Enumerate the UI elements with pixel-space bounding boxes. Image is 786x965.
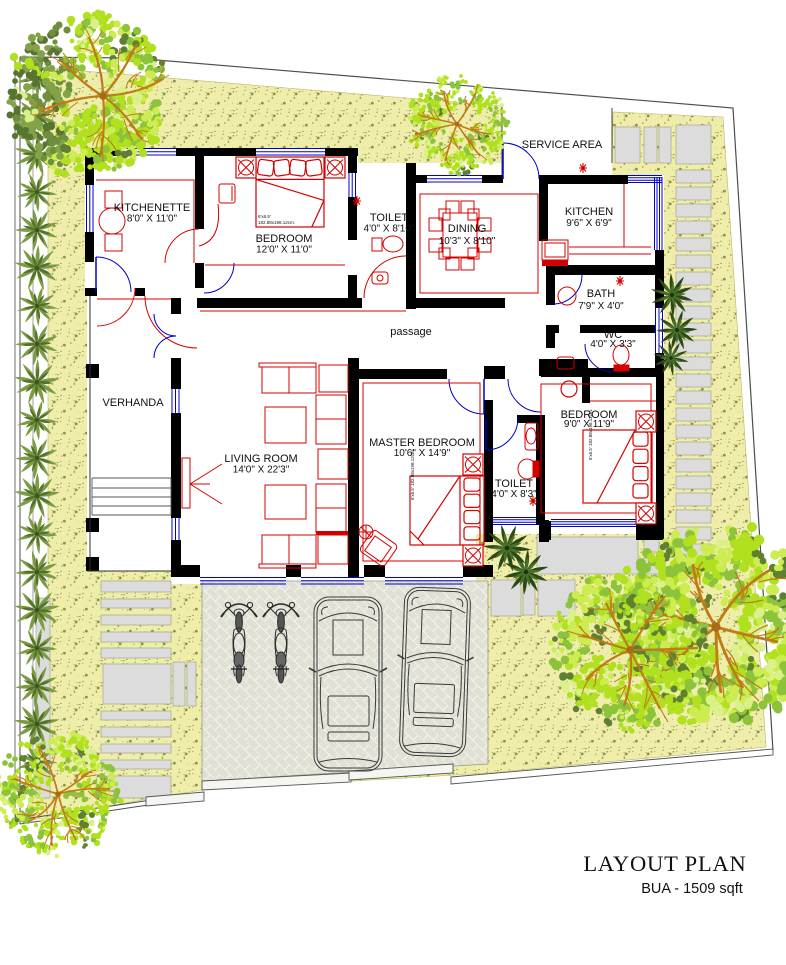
svg-text:4'0" X 3'3": 4'0" X 3'3" — [590, 339, 636, 350]
svg-text:LIVING ROOM: LIVING ROOM — [224, 453, 297, 465]
svg-text:14'0" X 22'3": 14'0" X 22'3" — [233, 465, 290, 476]
svg-text:8'0" X 11'0": 8'0" X 11'0" — [127, 214, 178, 225]
svg-text:BEDROOM: BEDROOM — [256, 233, 313, 245]
svg-text:10'6" X 14'9": 10'6" X 14'9" — [394, 448, 451, 459]
svg-text:4'0" X 8'10": 4'0" X 8'10" — [364, 224, 415, 235]
svg-text:12'0" X 11'0": 12'0" X 11'0" — [256, 245, 312, 256]
svg-text:9'6" X 6'9": 9'6" X 6'9" — [566, 218, 612, 229]
svg-text:DINING: DINING — [448, 223, 487, 235]
svg-text:182.88x198.12cm.: 182.88x198.12cm. — [258, 220, 295, 225]
svg-text:4'0" X 8'3": 4'0" X 8'3" — [491, 489, 537, 500]
svg-text:9'0" X 11'9": 9'0" X 11'9" — [564, 419, 615, 430]
svg-text:KITCHEN: KITCHEN — [565, 206, 613, 218]
svg-text:6'x6.5': 6'x6.5' — [258, 214, 271, 219]
svg-text:7'9" X 4'0": 7'9" X 4'0" — [578, 301, 624, 312]
svg-text:passage: passage — [390, 326, 432, 338]
svg-text:VERHANDA: VERHANDA — [102, 397, 164, 409]
svg-text:SERVICE AREA: SERVICE AREA — [522, 139, 603, 151]
svg-text:10'3" X 8'10": 10'3" X 8'10" — [439, 236, 496, 247]
svg-text:LAYOUT PLAN: LAYOUT PLAN — [583, 851, 746, 876]
svg-text:TOILET: TOILET — [370, 212, 409, 224]
svg-text:BUA - 1509 sqft: BUA - 1509 sqft — [641, 881, 743, 897]
svg-text:BATH: BATH — [587, 288, 616, 300]
svg-text:KITCHENETTE: KITCHENETTE — [114, 202, 190, 214]
